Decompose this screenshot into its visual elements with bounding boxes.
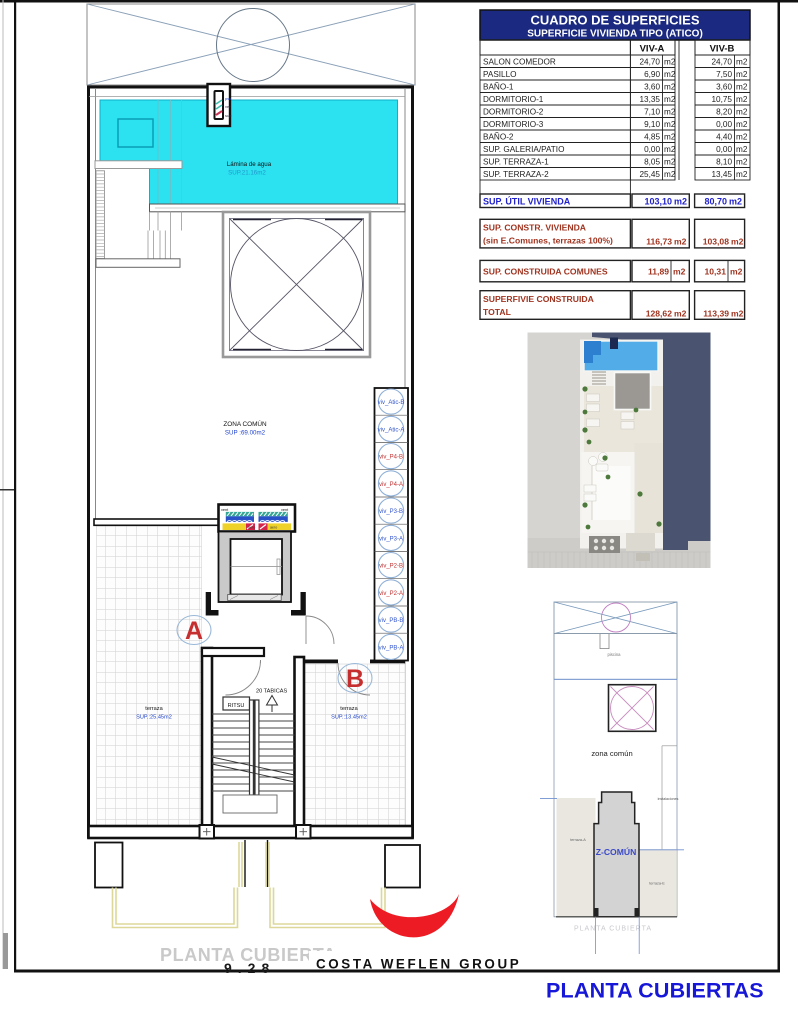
svg-text:A: A <box>185 617 203 645</box>
svg-text:m2: m2 <box>736 170 748 179</box>
svg-text:PLANTA CUBIERTA: PLANTA CUBIERTA <box>574 926 652 933</box>
svg-text:m2: m2 <box>664 58 676 67</box>
svg-text:ZONA COMÚN: ZONA COMÚN <box>223 419 267 428</box>
svg-text:10,31: 10,31 <box>704 267 726 277</box>
svg-text:BAÑO-2: BAÑO-2 <box>483 132 514 142</box>
svg-text:24,70: 24,70 <box>640 58 661 67</box>
svg-text:viv_PB-B: viv_PB-B <box>379 618 404 624</box>
svg-text:9.28: 9.28 <box>224 960 275 976</box>
svg-text:VIV-A: VIV-A <box>640 44 665 55</box>
svg-text:4,40: 4,40 <box>716 133 732 142</box>
svg-text:113,39: 113,39 <box>703 309 729 319</box>
svg-text:sup: sup <box>225 113 232 118</box>
svg-text:m2: m2 <box>664 158 676 167</box>
svg-text:m2: m2 <box>664 83 676 92</box>
svg-text:SUP. CONSTRUIDA COMUNES: SUP. CONSTRUIDA COMUNES <box>483 267 608 277</box>
svg-text:ver: ver <box>225 104 231 109</box>
svg-text:m2: m2 <box>729 197 742 207</box>
svg-text:terraza-E: terraza-E <box>649 882 665 886</box>
svg-text:SUPERFICIE VIVIENDA TIPO (ATI: SUPERFICIE VIVIENDA TIPO (ATICO) <box>527 29 703 40</box>
svg-text:m2: m2 <box>736 70 748 79</box>
svg-text:10,75: 10,75 <box>712 95 733 104</box>
svg-text:24,70: 24,70 <box>712 58 733 67</box>
svg-text:128,62: 128,62 <box>646 309 673 319</box>
svg-text:SUP. ÚTIL VIVIENDA: SUP. ÚTIL VIVIENDA <box>483 196 571 207</box>
svg-text:VIV-B: VIV-B <box>710 44 735 55</box>
svg-text:6,90: 6,90 <box>644 70 660 79</box>
svg-text:m2: m2 <box>674 197 687 207</box>
svg-text:B: B <box>346 665 364 693</box>
svg-text:9,10: 9,10 <box>644 120 660 129</box>
svg-text:aero: aero <box>248 526 255 530</box>
svg-text:viv_P3-A: viv_P3-A <box>379 536 403 542</box>
svg-text:SUP.:25.45m2: SUP.:25.45m2 <box>136 715 172 721</box>
svg-text:8,20: 8,20 <box>716 108 732 117</box>
svg-text:viv_Atic-B: viv_Atic-B <box>378 400 405 406</box>
svg-text:m2: m2 <box>736 95 748 104</box>
svg-text:4,85: 4,85 <box>644 133 660 142</box>
svg-text:11,89: 11,89 <box>648 267 669 277</box>
svg-text:terraza: terraza <box>145 706 163 712</box>
svg-text:SUP.:13.45m2: SUP.:13.45m2 <box>331 715 367 721</box>
svg-text:viv_Atic-A: viv_Atic-A <box>378 427 405 433</box>
svg-text:zona común: zona común <box>591 749 632 758</box>
svg-text:80,70: 80,70 <box>704 197 727 207</box>
svg-text:m2: m2 <box>664 108 676 117</box>
svg-text:SUPERFIVIE CONSTRUIDA: SUPERFIVIE CONSTRUIDA <box>483 294 594 304</box>
svg-text:7,10: 7,10 <box>644 108 660 117</box>
svg-text:CUADRO DE SUPERFICIES: CUADRO DE SUPERFICIES <box>530 13 699 28</box>
svg-text:terraza-A: terraza-A <box>570 838 586 842</box>
svg-text:vent: vent <box>281 508 289 512</box>
svg-text:m2: m2 <box>674 237 687 247</box>
svg-text:viv_P3-B: viv_P3-B <box>379 509 403 515</box>
svg-text:m2: m2 <box>736 120 748 129</box>
svg-text:8,10: 8,10 <box>716 158 732 167</box>
svg-text:m2: m2 <box>664 95 676 104</box>
svg-text:viv_P2-A: viv_P2-A <box>379 591 403 597</box>
svg-text:m2: m2 <box>664 170 676 179</box>
svg-text:m2: m2 <box>664 70 676 79</box>
svg-text:m2: m2 <box>674 309 687 319</box>
svg-text:m2: m2 <box>664 120 676 129</box>
svg-text:m2: m2 <box>731 237 744 247</box>
svg-text:SUP. CONSTR. VIVIENDA: SUP. CONSTR. VIVIENDA <box>483 223 586 233</box>
svg-text:DORMITORIO-2: DORMITORIO-2 <box>483 108 544 117</box>
svg-text:m2: m2 <box>736 108 748 117</box>
svg-text:SUP. GALERIA/PATIO: SUP. GALERIA/PATIO <box>483 145 564 154</box>
svg-text:m2: m2 <box>736 83 748 92</box>
svg-text:0,00: 0,00 <box>644 145 660 154</box>
svg-text:aero: aero <box>270 526 277 530</box>
svg-text:103,08: 103,08 <box>703 237 730 247</box>
svg-text:viv_P4-B: viv_P4-B <box>379 455 403 461</box>
svg-text:BAÑO-1: BAÑO-1 <box>483 82 514 92</box>
svg-text:Lámina de agua: Lámina de agua <box>227 161 272 168</box>
svg-text:8,05: 8,05 <box>644 158 660 167</box>
svg-text:COSTA WEFLEN GROUP: COSTA WEFLEN GROUP <box>316 957 521 972</box>
svg-text:TOTAL: TOTAL <box>483 307 511 317</box>
svg-text:(sin E.Comunes, terrazas 100%): (sin E.Comunes, terrazas 100%) <box>483 236 613 246</box>
svg-text:116,73: 116,73 <box>646 237 672 247</box>
svg-text:25,45: 25,45 <box>640 170 661 179</box>
svg-text:PLANTA CUBIERTAS: PLANTA CUBIERTAS <box>546 979 764 1003</box>
svg-text:SUP. TERRAZA-1: SUP. TERRAZA-1 <box>483 158 549 167</box>
svg-text:13,35: 13,35 <box>640 95 661 104</box>
svg-text:instalaciones: instalaciones <box>658 797 679 801</box>
svg-text:viv_PB-A: viv_PB-A <box>379 645 404 651</box>
svg-text:m2: m2 <box>731 309 744 319</box>
svg-text:m2: m2 <box>664 133 676 142</box>
svg-text:103,10: 103,10 <box>644 197 672 207</box>
svg-text:m2: m2 <box>736 133 748 142</box>
svg-text:terraza: terraza <box>340 706 358 712</box>
svg-text:vent: vent <box>221 508 229 512</box>
svg-text:m2: m2 <box>736 58 748 67</box>
svg-text:m2: m2 <box>730 267 743 277</box>
svg-text:m2: m2 <box>664 145 676 154</box>
svg-text:viv_P2-B: viv_P2-B <box>379 564 403 570</box>
svg-text:m2: m2 <box>736 145 748 154</box>
svg-text:piscina: piscina <box>607 652 621 657</box>
svg-text:RITSU: RITSU <box>228 703 245 709</box>
svg-text:13,45: 13,45 <box>712 170 733 179</box>
svg-text:3,60: 3,60 <box>644 83 660 92</box>
svg-text:DORMITORIO-3: DORMITORIO-3 <box>483 120 544 129</box>
svg-text:SUP.21.16m2: SUP.21.16m2 <box>228 170 266 177</box>
svg-text:m2: m2 <box>673 267 686 277</box>
svg-text:3,60: 3,60 <box>716 83 732 92</box>
svg-text:viv_P4-A: viv_P4-A <box>379 482 403 488</box>
svg-text:PASILLO: PASILLO <box>483 70 517 79</box>
svg-text:SUP :69.00m2: SUP :69.00m2 <box>225 430 266 437</box>
svg-text:0,00: 0,00 <box>716 120 732 129</box>
svg-text:m2: m2 <box>736 158 748 167</box>
svg-text:0,00: 0,00 <box>716 145 732 154</box>
svg-text:20 TABICAS: 20 TABICAS <box>256 689 287 695</box>
svg-text:Z-COMÚN: Z-COMÚN <box>596 846 637 857</box>
svg-text:DORMITORIO-1: DORMITORIO-1 <box>483 95 544 104</box>
svg-text:SALON COMEDOR: SALON COMEDOR <box>483 58 556 67</box>
svg-text:SUP. TERRAZA-2: SUP. TERRAZA-2 <box>483 170 549 179</box>
svg-text:7,50: 7,50 <box>716 70 732 79</box>
svg-text:psc: psc <box>225 96 231 101</box>
